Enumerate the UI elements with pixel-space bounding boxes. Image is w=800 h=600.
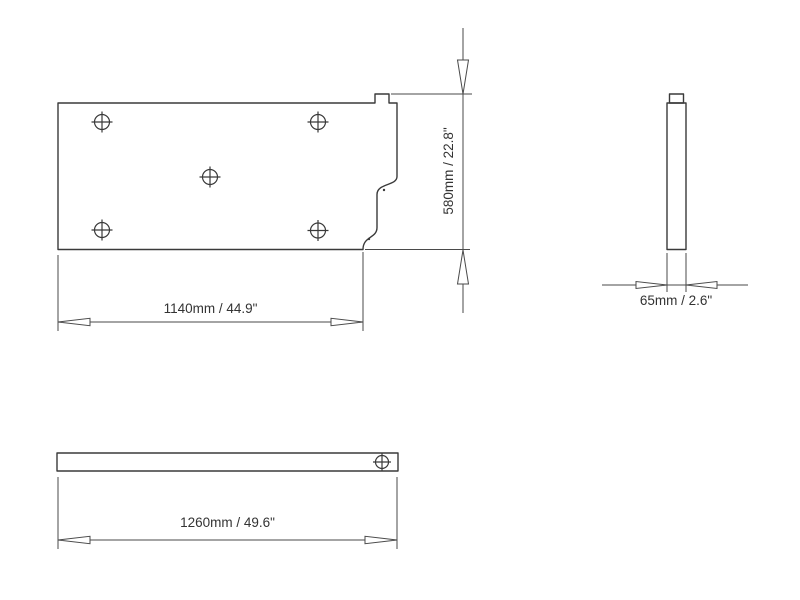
arrowhead-up-icon	[458, 250, 469, 284]
arc-center-dot	[383, 189, 385, 191]
hole-center-mark	[92, 220, 113, 241]
cad-drawing: 580mm / 22.8" 1140mm / 44.9" 65mm / 2.6"…	[0, 0, 800, 600]
dimension-label-width-inner: 1140mm / 44.9"	[164, 301, 258, 316]
dimension-label-height: 580mm / 22.8"	[441, 127, 456, 215]
arrowhead-down-icon	[458, 60, 469, 94]
plate-side-view	[667, 94, 686, 250]
arrowhead-right-icon	[331, 318, 363, 325]
hole-center-mark	[308, 112, 329, 133]
arrowhead-left-icon	[58, 536, 90, 543]
side-view-tab	[670, 94, 684, 103]
arrowhead-right-icon	[636, 282, 667, 289]
dimension-label-length: 1260mm / 49.6"	[180, 515, 275, 530]
hole-center-mark	[92, 112, 113, 133]
arc-center-dot	[368, 238, 370, 240]
dimension-length: 1260mm / 49.6"	[58, 477, 397, 549]
side-view-body	[667, 103, 686, 250]
technical-drawing-canvas: 580mm / 22.8" 1140mm / 44.9" 65mm / 2.6"…	[0, 0, 800, 600]
dimension-label-thickness: 65mm / 2.6"	[640, 293, 713, 308]
arrowhead-left-icon	[686, 282, 717, 289]
plate-front-view	[58, 94, 397, 250]
arrowhead-right-icon	[365, 536, 397, 543]
dimension-thickness: 65mm / 2.6"	[602, 253, 748, 308]
hole-center-mark	[200, 167, 221, 188]
arrowhead-left-icon	[58, 318, 90, 325]
hole-center-mark	[373, 453, 391, 471]
dimension-height: 580mm / 22.8"	[365, 28, 472, 313]
hole-center-mark	[308, 220, 329, 241]
bar-outline	[57, 453, 398, 471]
dimension-width-inner: 1140mm / 44.9"	[58, 252, 363, 331]
plate-bottom-view	[57, 453, 398, 471]
